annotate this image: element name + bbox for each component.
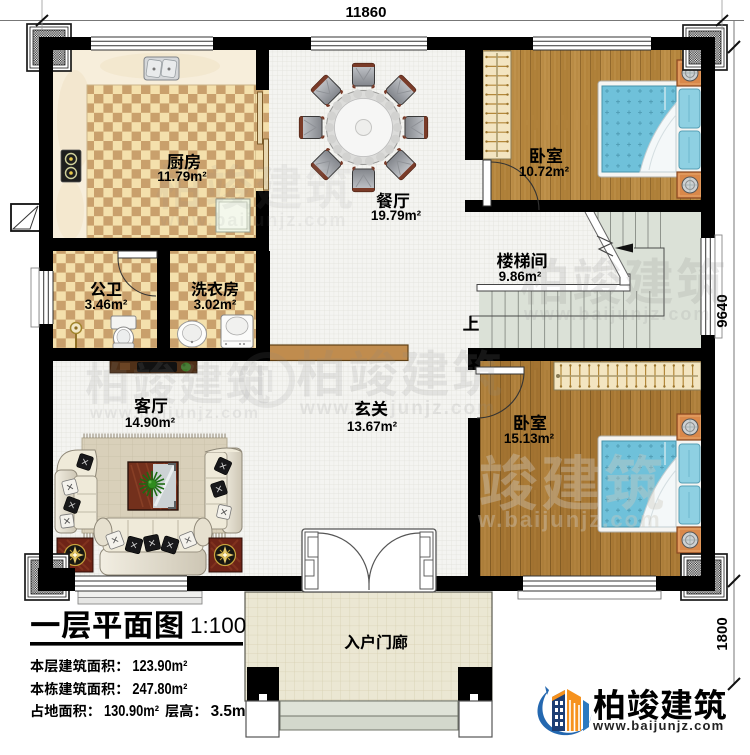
svg-text:1800: 1800	[714, 617, 731, 650]
svg-text:1:100: 1:100	[190, 613, 246, 638]
svg-text:11860: 11860	[346, 4, 387, 21]
svg-text:123.90m²: 123.90m²	[132, 658, 187, 675]
svg-text:www.baijunjz.com: www.baijunjz.com	[592, 718, 724, 733]
svg-text:w.baijunjz.com: w.baijunjz.com	[477, 507, 662, 532]
svg-text:15.13m²: 15.13m²	[504, 431, 555, 446]
svg-text:www.baijunjz.com: www.baijunjz.com	[523, 304, 711, 324]
svg-text:9.86m²: 9.86m²	[499, 269, 542, 284]
svg-text:10.72m²: 10.72m²	[519, 164, 570, 179]
svg-text:www.baijunjz.com: www.baijunjz.com	[159, 210, 347, 230]
svg-text:247.80m²: 247.80m²	[132, 681, 187, 698]
svg-text:11.79m²: 11.79m²	[157, 169, 207, 184]
svg-text:19.79m²: 19.79m²	[371, 208, 422, 223]
svg-text:13.67m²: 13.67m²	[347, 419, 398, 434]
svg-text:14.90m²: 14.90m²	[125, 415, 176, 430]
svg-text:3.5m: 3.5m	[211, 703, 246, 720]
svg-text:3.46m²: 3.46m²	[85, 297, 128, 312]
svg-text:www.baijunjz.com: www.baijunjz.com	[299, 398, 496, 419]
svg-text:3.02m²: 3.02m²	[194, 297, 237, 312]
svg-text:130.90m²: 130.90m²	[104, 703, 159, 720]
